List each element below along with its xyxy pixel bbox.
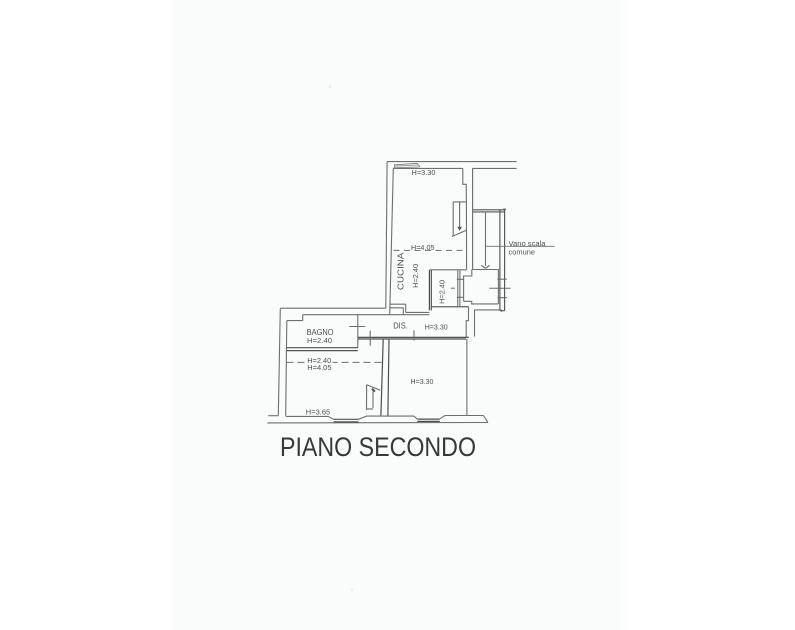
svg-text:comune: comune	[509, 247, 536, 256]
svg-text:H=3.30: H=3.30	[425, 322, 448, 331]
svg-text:H=3.30: H=3.30	[411, 377, 434, 386]
svg-text:H=2.40: H=2.40	[437, 280, 446, 304]
svg-text:DIS.: DIS.	[393, 321, 408, 331]
svg-text:H=3.30: H=3.30	[412, 168, 436, 177]
svg-text:H=4.05: H=4.05	[411, 243, 435, 252]
svg-text:H=3.65: H=3.65	[306, 408, 330, 417]
svg-text:H=2.40: H=2.40	[307, 336, 332, 345]
svg-text:H=2.40: H=2.40	[411, 264, 420, 288]
svg-text:CUCINA: CUCINA	[395, 252, 405, 290]
svg-text:PIANO SECONDO: PIANO SECONDO	[280, 432, 476, 462]
svg-text:H=4.05: H=4.05	[307, 363, 331, 372]
